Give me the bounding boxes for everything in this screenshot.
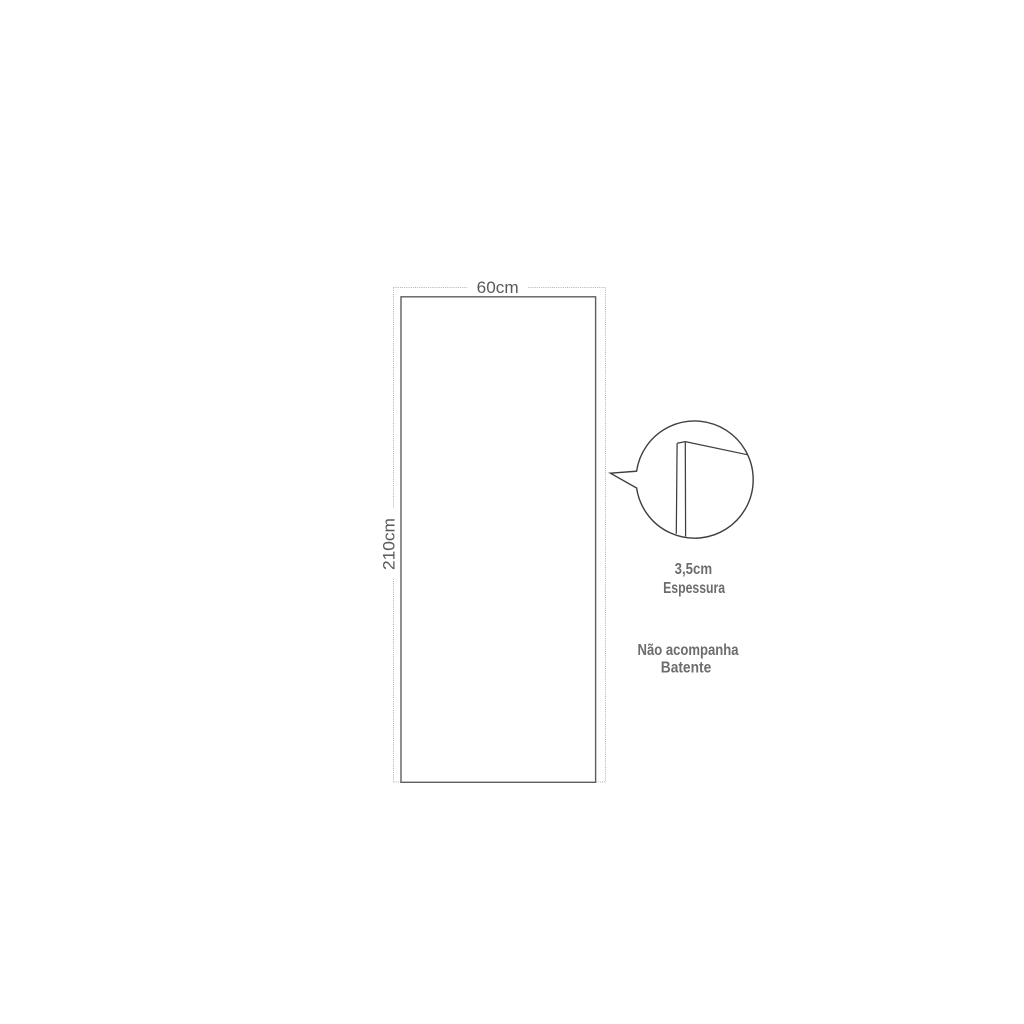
- svg-text:Batente: Batente: [661, 660, 712, 677]
- svg-text:Espessura: Espessura: [663, 580, 725, 597]
- svg-text:210cm: 210cm: [380, 518, 399, 570]
- svg-text:3,5cm: 3,5cm: [675, 561, 713, 578]
- svg-text:60cm: 60cm: [477, 278, 519, 297]
- svg-text:Não acompanha: Não acompanha: [638, 642, 739, 659]
